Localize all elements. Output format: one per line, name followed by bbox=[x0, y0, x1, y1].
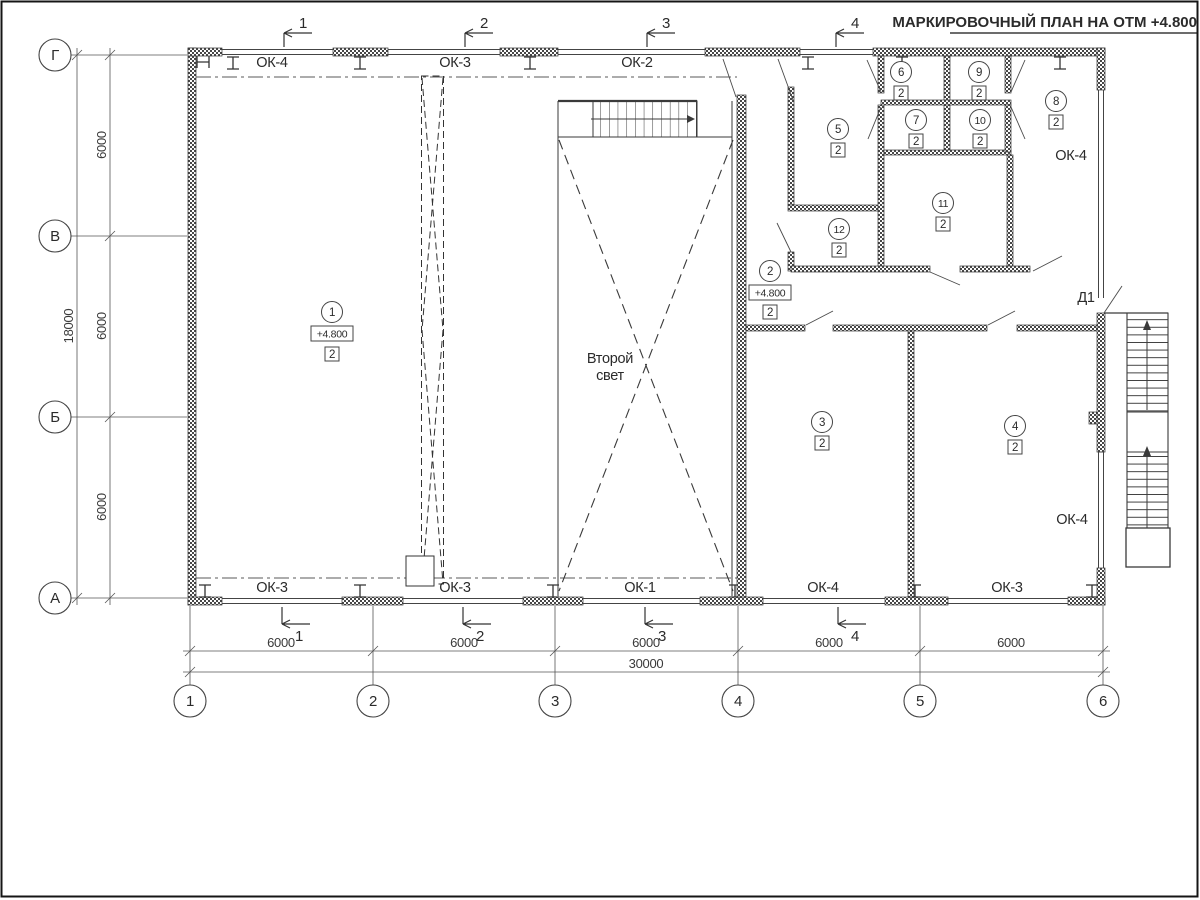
window-label-top-3: ОК-2 bbox=[621, 55, 653, 71]
grid-axis-number: 1 bbox=[186, 693, 194, 710]
grid-axis-letter: Г bbox=[51, 47, 59, 64]
grid-axis-letter: В bbox=[50, 228, 60, 245]
room-number: 3 bbox=[819, 417, 825, 429]
room-number: 6 bbox=[898, 67, 904, 79]
dim-span: 6000 bbox=[815, 635, 843, 650]
room-elevation: +4.800 bbox=[755, 288, 786, 300]
room-type: 2 bbox=[835, 145, 841, 157]
dim-span: 6000 bbox=[632, 635, 660, 650]
dash-dot-lines bbox=[196, 77, 746, 578]
room-type: 2 bbox=[1012, 442, 1018, 454]
window-label-top-1: ОК-4 bbox=[256, 55, 288, 71]
room-number: 9 bbox=[976, 67, 982, 79]
room-type: 2 bbox=[767, 307, 773, 319]
room-number: 8 bbox=[1053, 96, 1059, 108]
page-title: МАРКИРОВОЧНЫЙ ПЛАН НА ОТМ +4.800 bbox=[892, 13, 1197, 31]
second-light-text: Второй свет bbox=[587, 351, 633, 384]
left-dimensions: 6000 6000 6000 18000 Г В Б А bbox=[39, 39, 187, 614]
grid-axis-number: 4 bbox=[734, 693, 742, 710]
exterior-stair bbox=[1105, 313, 1170, 567]
section-mark-label: 3 bbox=[662, 15, 670, 32]
room-type: 2 bbox=[836, 245, 842, 257]
room-type: 2 bbox=[977, 136, 983, 148]
grid-axis-number: 5 bbox=[916, 693, 924, 710]
room-type: 2 bbox=[940, 219, 946, 231]
room-type: 2 bbox=[898, 88, 904, 100]
section-mark-label: 1 bbox=[295, 628, 303, 645]
dim-total: 18000 bbox=[61, 309, 76, 344]
door-label-d1: Д1 bbox=[1077, 290, 1095, 306]
grid-axis-number: 2 bbox=[369, 693, 377, 710]
room-number: 11 bbox=[938, 198, 949, 210]
window-label-bottom-2: ОК-3 bbox=[439, 580, 471, 596]
title-block: МАРКИРОВОЧНЫЙ ПЛАН НА ОТМ +4.800 bbox=[892, 13, 1197, 33]
folding-partition bbox=[406, 76, 444, 586]
section-mark-label: 2 bbox=[480, 15, 488, 32]
second-light-label-line1: Второй bbox=[587, 351, 633, 367]
grid-axis-letter: Б bbox=[50, 409, 60, 426]
room-number: 12 bbox=[833, 224, 845, 236]
room-type: 2 bbox=[976, 88, 982, 100]
room-number: 5 bbox=[835, 124, 841, 136]
window-label-top-2: ОК-3 bbox=[439, 55, 471, 71]
section-mark-label: 4 bbox=[851, 15, 859, 32]
drawing-sheet: МАРКИРОВОЧНЫЙ ПЛАН НА ОТМ +4.800 bbox=[0, 0, 1200, 900]
room-number: 4 bbox=[1012, 421, 1019, 433]
second-light-label-line2: свет bbox=[596, 368, 624, 384]
window-label-right-bottom: ОК-4 bbox=[1056, 512, 1088, 528]
grid-axis-number: 3 bbox=[551, 693, 559, 710]
window-label-bottom-1: ОК-3 bbox=[256, 580, 288, 596]
room-number: 2 bbox=[767, 266, 773, 278]
dim-total: 30000 bbox=[629, 656, 664, 671]
second-light-void bbox=[558, 101, 733, 596]
room-type: 2 bbox=[913, 136, 919, 148]
window-label-right-top: ОК-4 bbox=[1055, 148, 1087, 164]
dim-span: 6000 bbox=[94, 131, 109, 159]
window-label-bottom-4: ОК-4 bbox=[807, 580, 839, 596]
grid-axis-letter: А bbox=[50, 590, 60, 607]
grid-axis-number: 6 bbox=[1099, 693, 1107, 710]
room-elevation: +4.800 bbox=[317, 329, 348, 341]
floor-plan-drawing: МАРКИРОВОЧНЫЙ ПЛАН НА ОТМ +4.800 bbox=[0, 0, 1200, 900]
dim-span: 6000 bbox=[94, 493, 109, 521]
dim-span: 6000 bbox=[94, 312, 109, 340]
room-type: 2 bbox=[1053, 117, 1059, 129]
window-label-bottom-3: ОК-1 bbox=[624, 580, 656, 596]
room-type: 2 bbox=[819, 438, 825, 450]
room-type: 2 bbox=[329, 349, 335, 361]
dim-span: 6000 bbox=[450, 635, 478, 650]
dim-span: 6000 bbox=[267, 635, 295, 650]
room-number: 10 bbox=[974, 115, 986, 127]
dim-span: 6000 bbox=[997, 635, 1025, 650]
section-mark-label: 4 bbox=[851, 628, 859, 645]
window-label-bottom-5: ОК-3 bbox=[991, 580, 1023, 596]
room-number: 7 bbox=[913, 115, 919, 127]
section-mark-label: 1 bbox=[299, 15, 307, 32]
room-number: 1 bbox=[329, 307, 335, 319]
